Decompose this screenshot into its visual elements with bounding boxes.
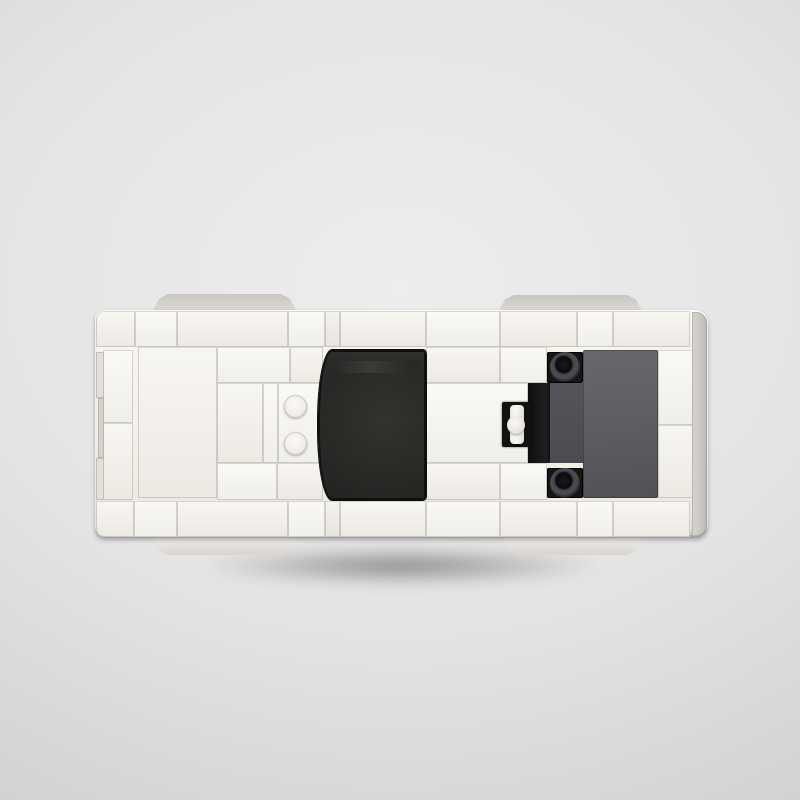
- pin-ring-top: [550, 352, 580, 382]
- brick-top-row-4: [288, 311, 325, 347]
- brick-top-row-7: [426, 311, 500, 347]
- windshield-glass: [318, 350, 426, 500]
- brick-top-row-6: [340, 311, 426, 347]
- brick-bottom-row-8: [500, 501, 577, 537]
- brick-roof-3: [426, 463, 500, 500]
- brick-roof-1: [426, 347, 500, 383]
- brick-mid-1: [217, 347, 290, 383]
- bumper-tab-3: [96, 458, 104, 500]
- brick-bottom-row-9: [577, 501, 613, 537]
- brick-bottom-row-1: [96, 501, 134, 537]
- brick-bottom-row-7: [426, 501, 500, 537]
- car-model: [95, 310, 708, 538]
- brick-mid-2: [290, 347, 323, 383]
- brick-top-row-5: [325, 311, 340, 347]
- brick-mid-3: [217, 463, 277, 500]
- brick-bottom-row-5: [325, 501, 340, 537]
- brick-roof-2: [500, 347, 547, 383]
- bumper-tab-2: [98, 398, 104, 458]
- brick-rear-upper: [658, 350, 695, 425]
- brick-left-lower: [103, 423, 133, 500]
- brick-top-row-8: [500, 311, 577, 347]
- wheel-bottom-right: [502, 536, 643, 555]
- brick-top-row-2: [135, 311, 177, 347]
- brick-top-row-1: [96, 311, 135, 347]
- brick-top-row-3: [177, 311, 288, 347]
- brick-top-row-10: [613, 311, 690, 347]
- brick-bottom-row-6: [340, 501, 426, 537]
- engine-mid: [547, 383, 583, 463]
- brick-top-row-9: [577, 311, 613, 347]
- console-knob: [507, 416, 525, 434]
- rear-bumper-strip: [692, 312, 707, 536]
- brick-bottom-row-2: [134, 501, 177, 537]
- studio-background: [0, 0, 800, 800]
- panel-front: [138, 347, 217, 498]
- brick-left-upper: [103, 350, 133, 423]
- stud-2: [284, 432, 307, 455]
- bumper-tab-1: [96, 352, 104, 398]
- panel-cockpit-left: [217, 383, 263, 463]
- wheel-bottom-left: [152, 536, 297, 555]
- brick-bottom-row-10: [613, 501, 690, 537]
- strip-cockpit: [263, 383, 278, 463]
- brick-bottom-row-4: [288, 501, 325, 537]
- engine-cover: [583, 350, 658, 498]
- stud-1: [284, 395, 307, 418]
- brick-bottom-row-3: [177, 501, 288, 537]
- pin-ring-bottom: [550, 468, 580, 498]
- brick-rear-lower: [658, 425, 695, 498]
- brick-roof-4: [500, 463, 547, 500]
- brick-mid-4: [277, 463, 323, 500]
